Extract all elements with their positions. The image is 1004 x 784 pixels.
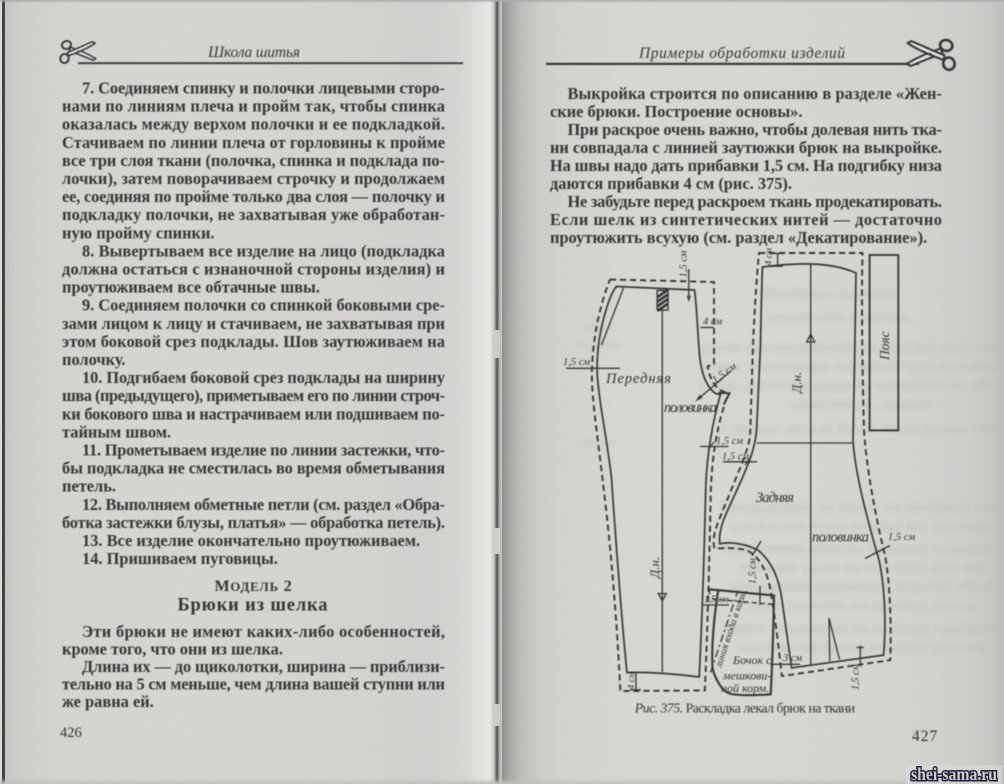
svg-text:shei-sama.ru: shei-sama.ru	[911, 764, 997, 784]
